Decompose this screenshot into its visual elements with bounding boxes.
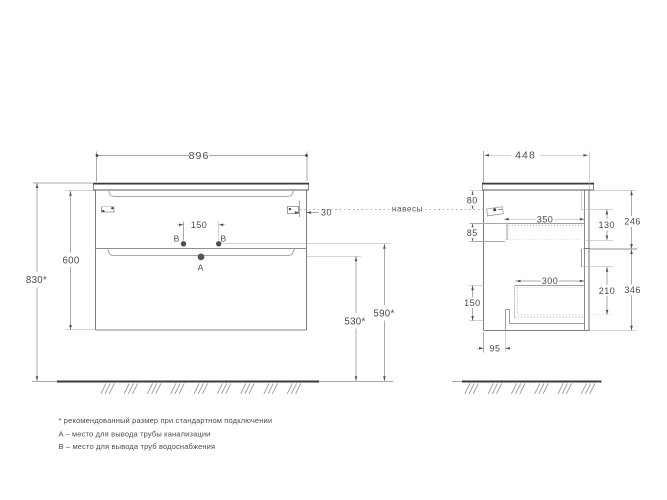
svg-text:A: A [198,262,204,272]
svg-text:85: 85 [467,228,478,238]
svg-text:B – место для вывода труб водо: B – место для вывода труб водоснабжения [59,442,216,451]
svg-text:346: 346 [624,285,641,295]
svg-text:95: 95 [489,344,500,354]
svg-text:896: 896 [189,150,210,162]
svg-text:246: 246 [624,217,641,227]
svg-text:150: 150 [191,220,208,230]
svg-text:150: 150 [464,298,481,308]
svg-text:590*: 590* [373,308,394,319]
svg-text:30: 30 [321,208,332,218]
svg-text:80: 80 [467,196,478,206]
svg-text:300: 300 [542,276,559,286]
svg-text:навесы: навесы [392,204,423,213]
svg-text:830*: 830* [26,275,47,286]
svg-text:600: 600 [62,255,79,266]
svg-text:* рекомендованный размер при с: * рекомендованный размер при стандартном… [59,416,273,425]
svg-text:130: 130 [599,220,616,230]
svg-text:210: 210 [599,286,616,296]
svg-text:B: B [220,234,226,244]
svg-text:350: 350 [537,214,554,224]
svg-text:530*: 530* [344,316,365,327]
svg-text:B: B [174,234,180,244]
svg-text:448: 448 [515,150,536,162]
svg-text:A – место для вывода трубы кан: A – место для вывода трубы канализации [59,429,211,438]
